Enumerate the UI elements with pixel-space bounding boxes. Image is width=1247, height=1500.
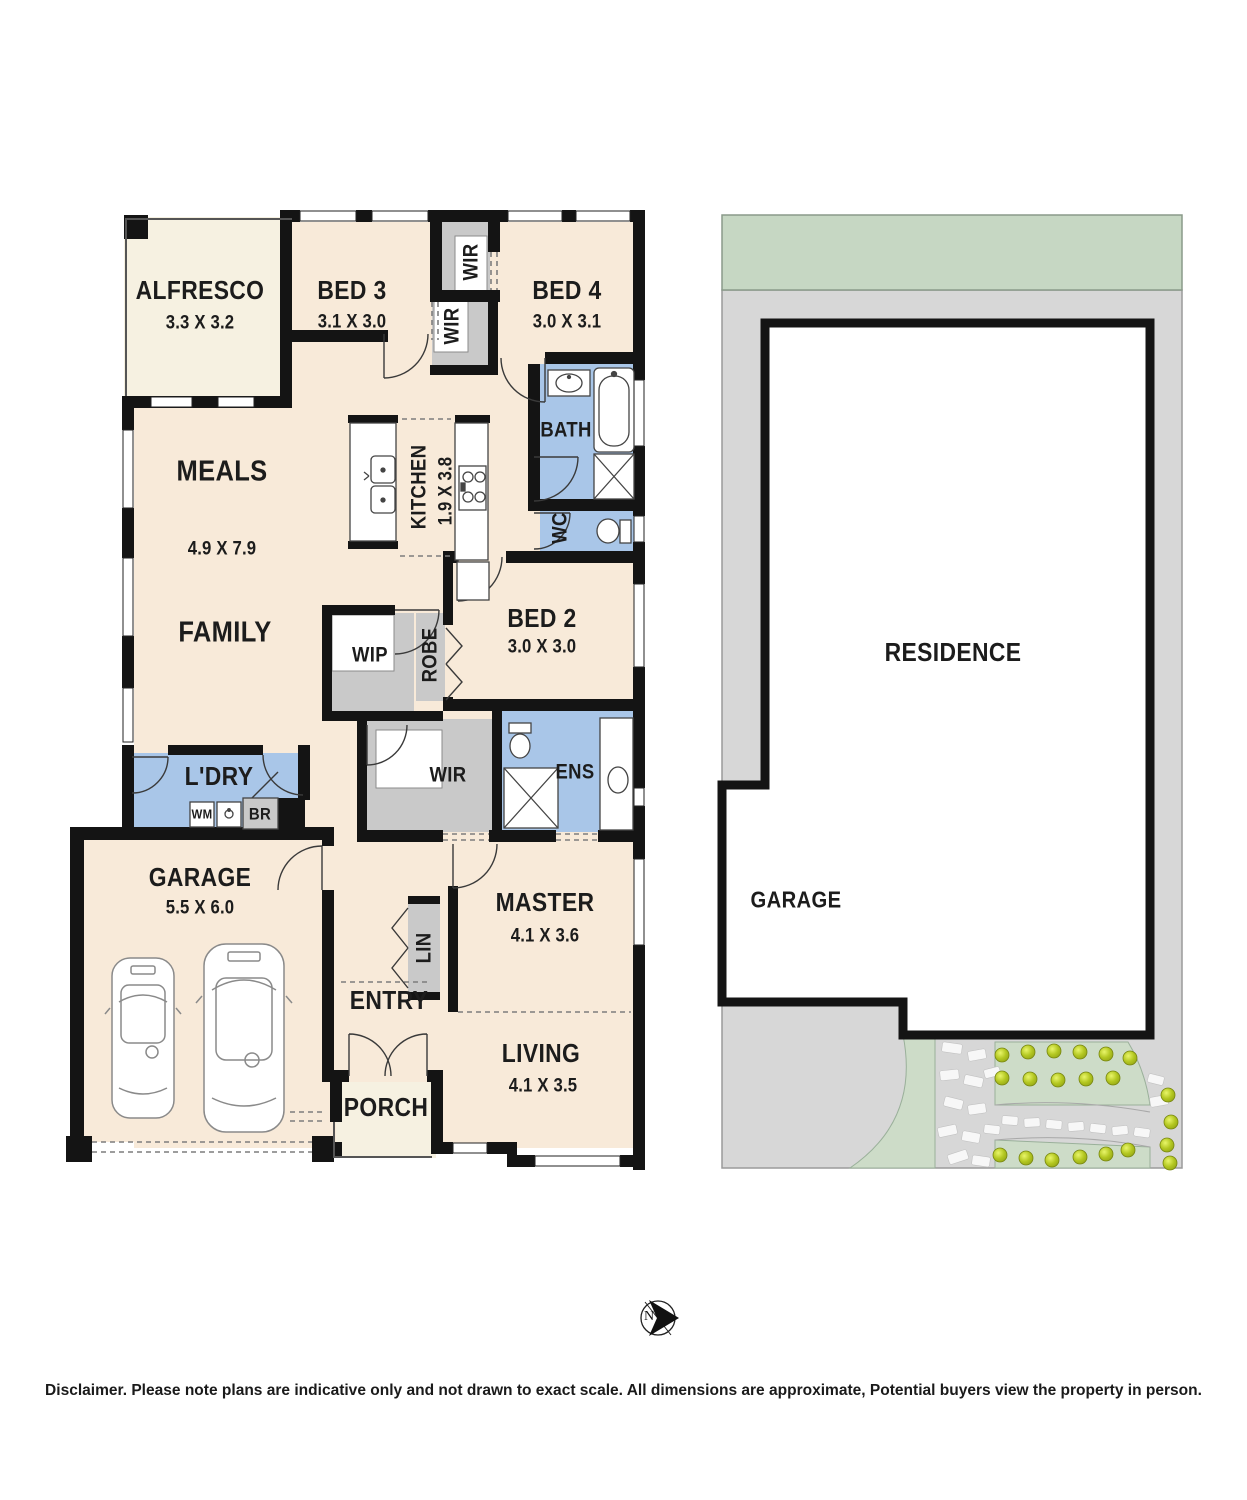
- ens-vanity: [600, 718, 633, 830]
- room-label-meals: MEALS: [176, 458, 267, 487]
- room-label-wir-bed4: WIR: [461, 244, 482, 281]
- disclaimer-text: Disclaimer. Please note plans are indica…: [19, 1382, 1229, 1400]
- room-label-bed2: BED 2: [507, 605, 576, 631]
- room-label-lin: LIN: [414, 933, 435, 964]
- label-washing-machine: WM: [191, 808, 212, 821]
- room-dims-bed4: 3.0 X 3.1: [533, 313, 602, 332]
- floor-plan: [66, 210, 645, 1170]
- room-label-bed4: BED 4: [532, 277, 601, 303]
- floorplan-page: ALFRESCO 3.3 X 3.2 BED 3 3.1 X 3.0 BED 4…: [0, 0, 1247, 1500]
- room-label-kitchen: KITCHEN: [409, 445, 430, 530]
- room-label-garage: GARAGE: [149, 864, 252, 890]
- room-dims-master: 4.1 X 3.6: [511, 927, 580, 946]
- room-label-ldry: L'DRY: [185, 763, 254, 789]
- room-label-wir-bed3: WIR: [442, 308, 463, 345]
- room-label-wip: WIP: [352, 645, 388, 666]
- room-label-wir-master: WIR: [430, 765, 467, 786]
- room-label-porch: PORCH: [344, 1094, 428, 1120]
- room-label-bath: BATH: [540, 420, 591, 441]
- fridge: [457, 562, 489, 600]
- room-dims-living: 4.1 X 3.5: [509, 1077, 578, 1096]
- plan-drawing: [0, 0, 1247, 1500]
- rear-green-strip: [722, 215, 1182, 290]
- site-plan: [722, 215, 1182, 1170]
- room-label-family: FAMILY: [178, 619, 271, 648]
- wc-toilet: [597, 519, 619, 543]
- laundry-trough: [217, 802, 241, 827]
- room-dims-bed3: 3.1 X 3.0: [318, 313, 387, 332]
- room-dims-alfresco: 3.3 X 3.2: [166, 314, 235, 333]
- car-2: [196, 944, 292, 1132]
- room-dims-bed2: 3.0 X 3.0: [508, 638, 577, 657]
- room-label-ens: ENS: [555, 762, 594, 783]
- room-label-bed3: BED 3: [317, 277, 386, 303]
- room-dims-meals: 4.9 X 7.9: [188, 540, 257, 559]
- room-label-robe: ROBE: [420, 628, 441, 683]
- site-label-residence: RESIDENCE: [885, 639, 1022, 665]
- room-label-alfresco: ALFRESCO: [136, 277, 265, 303]
- label-broom-cupboard: BR: [249, 806, 271, 823]
- room-label-wc: WC: [550, 512, 571, 544]
- car-1: [105, 958, 181, 1118]
- room-dims-garage: 5.5 X 6.0: [166, 899, 235, 918]
- site-label-garage: GARAGE: [751, 889, 842, 912]
- room-label-master: MASTER: [496, 889, 595, 915]
- room-label-living: LIVING: [502, 1040, 580, 1066]
- ens-toilet-tank: [509, 723, 531, 733]
- room-label-entry: ENTRY: [350, 987, 428, 1013]
- residence-footprint: [722, 323, 1150, 1035]
- room-dims-kitchen: 1.9 X 3.8: [437, 457, 456, 526]
- bathtub: [594, 368, 634, 452]
- north-letter: N: [644, 1309, 654, 1325]
